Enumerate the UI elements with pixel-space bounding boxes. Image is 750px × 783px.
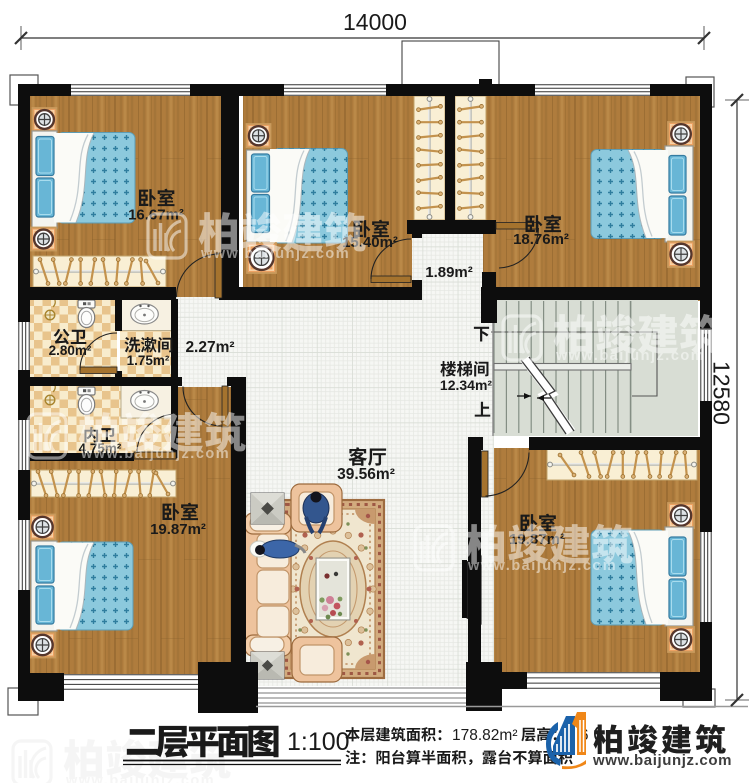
svg-text:www.baijunjz.com: www.baijunjz.com	[467, 558, 617, 574]
svg-text:19.87m²: 19.87m²	[150, 521, 206, 538]
svg-text:www.baijunjz.com: www.baijunjz.com	[555, 348, 705, 364]
svg-text:www.baijunjz.com: www.baijunjz.com	[65, 773, 215, 783]
svg-text:39.56m²: 39.56m²	[337, 466, 395, 483]
svg-text:14000: 14000	[343, 9, 407, 35]
svg-text:1.89m²: 1.89m²	[425, 264, 473, 281]
svg-text:18.76m²: 18.76m²	[513, 231, 569, 248]
svg-text:www.baijunjz.com: www.baijunjz.com	[200, 246, 350, 262]
svg-text:1.75m²: 1.75m²	[127, 353, 170, 368]
svg-text:1:100: 1:100	[287, 728, 350, 756]
svg-text:178.82m²: 178.82m²	[452, 727, 517, 744]
svg-text:2.80m²: 2.80m²	[49, 343, 92, 358]
svg-text:www.baijunjz.com: www.baijunjz.com	[592, 752, 732, 769]
svg-text:12580: 12580	[709, 361, 735, 425]
svg-text:12.34m²: 12.34m²	[440, 377, 492, 393]
svg-text:www.baijunjz.com: www.baijunjz.com	[80, 446, 230, 462]
svg-text:2.27m²: 2.27m²	[185, 339, 234, 356]
